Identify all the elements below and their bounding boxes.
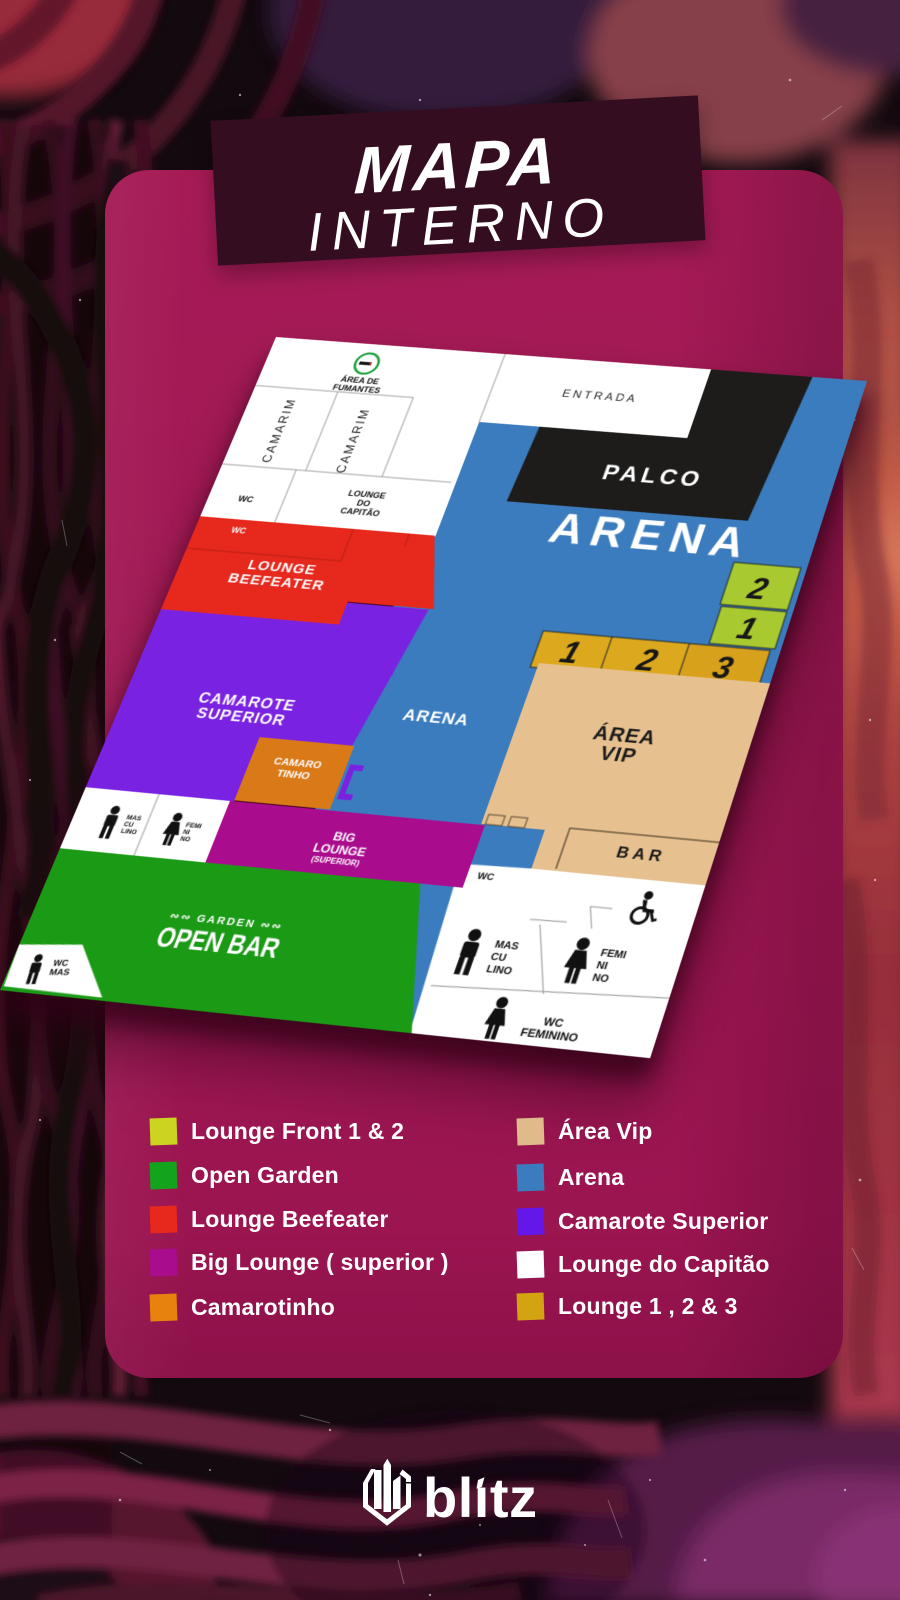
svg-text:blıtz: blıtz: [423, 1466, 537, 1529]
